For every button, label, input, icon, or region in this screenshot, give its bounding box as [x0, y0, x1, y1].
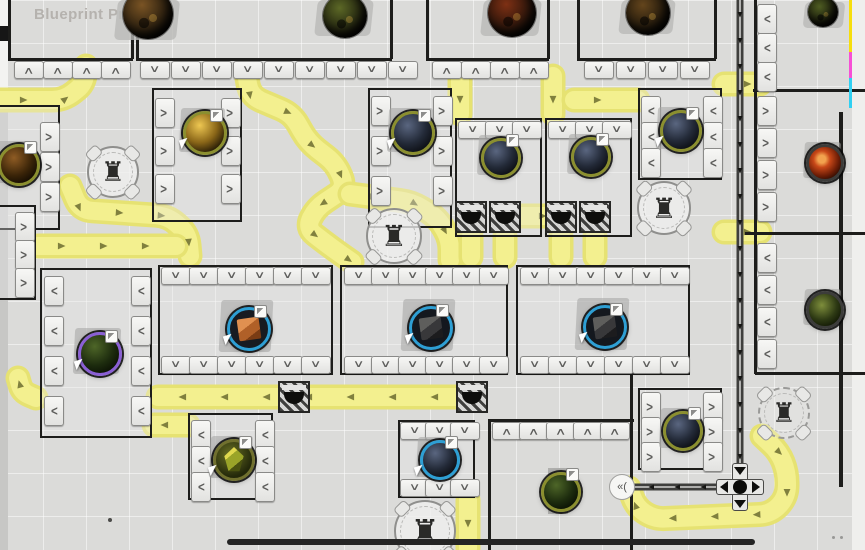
arrow-left-icon: [720, 481, 728, 493]
chevron-down-icon: ∨: [380, 360, 392, 370]
belt-port[interactable]: ∨: [632, 267, 662, 285]
chevron-right-icon: ∨: [226, 183, 236, 195]
chevron-up-icon: ∨: [528, 65, 540, 75]
chevron-right-icon: ∨: [45, 131, 55, 143]
belt-port[interactable]: ∨: [632, 356, 662, 374]
platform-border: [547, 0, 550, 59]
chevron-right-icon: ∨: [438, 185, 448, 197]
belt-port[interactable]: ∨: [101, 61, 131, 79]
platform-border: [390, 0, 393, 59]
belt-port[interactable]: ∨: [576, 267, 606, 285]
chevron-down-icon: ∨: [434, 271, 446, 281]
node-info-badge: [24, 141, 37, 154]
belt-port[interactable]: ∨: [479, 267, 509, 285]
chevron-right-icon: ∨: [708, 401, 718, 413]
belt-port[interactable]: ∨: [264, 61, 294, 79]
belt-port[interactable]: ∨: [388, 61, 418, 79]
belt-port[interactable]: ∨: [217, 356, 247, 374]
chevron-down-icon: ∨: [226, 360, 238, 370]
belt-port[interactable]: ∨: [273, 267, 303, 285]
node-info-badge: [254, 305, 267, 318]
belt-port[interactable]: ∨: [301, 267, 331, 285]
chevron-down-icon: ∨: [625, 65, 637, 75]
chevron-up-icon: ∨: [501, 426, 513, 436]
chevron-left-icon: ∨: [196, 481, 206, 493]
chevron-right-icon: ∨: [646, 451, 656, 463]
arrow-down-icon: [734, 467, 746, 475]
tunnel-lip: [549, 205, 573, 210]
chevron-down-icon: ∨: [529, 271, 541, 281]
platform-border: [488, 421, 491, 550]
tower-rook-icon: ♜: [760, 389, 808, 437]
chevron-down-icon: ∨: [170, 360, 182, 370]
chevron-right-icon: ∨: [646, 401, 656, 413]
station-tower[interactable]: ♜: [366, 208, 422, 264]
chevron-down-icon: ∨: [529, 360, 541, 370]
chevron-down-icon: ∨: [310, 360, 322, 370]
dock-button[interactable]: «(: [609, 474, 635, 500]
chevron-right-icon: ∨: [20, 277, 30, 289]
platform-border: [714, 0, 717, 59]
chevron-left-icon: ∨: [49, 325, 59, 337]
belt-port[interactable]: ∨: [255, 472, 275, 502]
platform-border: [8, 0, 11, 59]
chevron-left-icon: ∨: [260, 455, 270, 467]
chevron-down-icon: ∨: [488, 271, 500, 281]
belt-port[interactable]: ∨: [398, 356, 428, 374]
shape-crystal-icon: [222, 447, 245, 472]
speck-dot: [108, 518, 112, 522]
tunnel-lip: [282, 385, 306, 390]
belt-port[interactable]: ∨: [326, 61, 356, 79]
chevron-down-icon: ∨: [669, 360, 681, 370]
chevron-up-icon: ∨: [110, 65, 122, 75]
belt-port[interactable]: ∨: [131, 316, 151, 346]
belt-port[interactable]: ∨: [757, 33, 777, 63]
node-info-badge: [610, 303, 623, 316]
chevron-down-icon: ∨: [409, 426, 421, 436]
station-tower[interactable]: ♜: [87, 146, 139, 198]
chevron-down-icon: ∨: [521, 125, 533, 135]
chevron-up-icon: ∨: [528, 426, 540, 436]
belt-port[interactable]: ∨: [131, 276, 151, 306]
chevron-down-icon: ∨: [657, 65, 669, 75]
node-info-badge: [506, 134, 519, 147]
chevron-down-icon: ∨: [557, 125, 569, 135]
chevron-down-icon: ∨: [434, 483, 446, 493]
belt-port[interactable]: ∨: [131, 396, 151, 426]
belt-port[interactable]: ∨: [221, 174, 241, 204]
chevron-left-icon: ∨: [646, 131, 656, 143]
belt-port[interactable]: ∨: [757, 275, 777, 305]
belt-port[interactable]: ∨: [757, 192, 777, 222]
tower-rook-icon: ♜: [89, 148, 137, 196]
belt-tunnel[interactable]: [456, 381, 488, 413]
belt-port[interactable]: ∨: [519, 61, 549, 79]
belt-port[interactable]: ∨: [452, 356, 482, 374]
resource-node[interactable]: [806, 144, 844, 182]
belt-port[interactable]: ∨: [40, 182, 60, 212]
belt-port[interactable]: ∨: [450, 479, 480, 497]
chevron-down-icon: ∨: [407, 360, 419, 370]
chevron-down-icon: ∨: [353, 271, 365, 281]
belt-port[interactable]: ∨: [191, 472, 211, 502]
chevron-down-icon: ∨: [461, 360, 473, 370]
belt-port[interactable]: ∨: [703, 148, 723, 178]
chevron-down-icon: ∨: [380, 271, 392, 281]
chevron-right-icon: ∨: [438, 105, 448, 117]
rail-junction[interactable]: [716, 463, 764, 511]
shape-cube-icon: [419, 316, 444, 341]
edge-color-strip: [849, 78, 852, 108]
station-tower[interactable]: ♜: [637, 181, 691, 235]
chevron-left-icon: ∨: [762, 252, 772, 264]
chevron-down-icon: ∨: [282, 271, 294, 281]
belt-port[interactable]: ∨: [604, 267, 634, 285]
belt-port[interactable]: ∨: [680, 61, 710, 79]
chevron-down-icon: ∨: [198, 360, 210, 370]
resource-node[interactable]: [806, 291, 844, 329]
platform-border: [755, 372, 865, 375]
chevron-left-icon: ∨: [136, 405, 146, 417]
chevron-left-icon: ∨: [762, 316, 772, 328]
chevron-down-icon: ∨: [585, 360, 597, 370]
node-info-badge: [688, 407, 701, 420]
chevron-right-icon: ∨: [762, 201, 772, 213]
node-info-badge: [210, 109, 223, 122]
belt-port[interactable]: ∨: [604, 356, 634, 374]
speck-dot: [832, 536, 835, 539]
chevron-down-icon: ∨: [613, 360, 625, 370]
chevron-right-icon: ∨: [708, 426, 718, 438]
chevron-up-icon: ∨: [499, 65, 511, 75]
edge-color-strip: [849, 0, 852, 52]
chevron-right-icon: ∨: [20, 221, 30, 233]
belt-port[interactable]: ∨: [140, 61, 170, 79]
chevron-down-icon: ∨: [434, 360, 446, 370]
belt-port[interactable]: ∨: [44, 356, 64, 386]
chevron-down-icon: ∨: [669, 271, 681, 281]
belt-port[interactable]: ∨: [245, 267, 275, 285]
belt-port[interactable]: ∨: [189, 356, 219, 374]
junction-hub-icon: [733, 480, 747, 494]
edge-color-strip: [849, 52, 852, 78]
belt-port[interactable]: ∨: [757, 339, 777, 369]
node-info-badge: [105, 330, 118, 343]
chevron-left-icon: ∨: [49, 365, 59, 377]
belt-port[interactable]: ∨: [433, 96, 453, 126]
belt-port[interactable]: ∨: [548, 267, 578, 285]
belt-port[interactable]: ∨: [295, 61, 325, 79]
chevron-up-icon: ∨: [81, 65, 93, 75]
belt-port[interactable]: ∨: [757, 160, 777, 190]
belt-port[interactable]: ∨: [202, 61, 232, 79]
chevron-left-icon: ∨: [49, 405, 59, 417]
bottom-scrollbar[interactable]: [227, 539, 755, 545]
belt-port[interactable]: ∨: [161, 267, 191, 285]
belt-port[interactable]: ∨: [398, 267, 428, 285]
chevron-up-icon: ∨: [555, 426, 567, 436]
belt-port[interactable]: ∨: [43, 61, 73, 79]
chevron-left-icon: ∨: [708, 157, 718, 169]
belt-port[interactable]: ∨: [452, 267, 482, 285]
chevron-right-icon: ∨: [226, 107, 236, 119]
belt-port[interactable]: ∨: [217, 267, 247, 285]
chevron-left-icon: ∨: [136, 325, 146, 337]
belt-port[interactable]: ∨: [371, 176, 391, 206]
chevron-down-icon: ∨: [273, 65, 285, 75]
station-tower[interactable]: ♜: [758, 387, 810, 439]
chevron-right-icon: ∨: [438, 145, 448, 157]
belt-port[interactable]: ∨: [344, 356, 374, 374]
belt-port[interactable]: ∨: [14, 61, 44, 79]
belt-port[interactable]: ∨: [461, 61, 491, 79]
chevron-down-icon: ∨: [459, 483, 471, 493]
shape-cube-icon: [237, 317, 262, 342]
platform-border: [630, 373, 633, 550]
tower-rook-icon: ♜: [639, 183, 689, 233]
belt-tunnel[interactable]: [278, 381, 310, 413]
belt-port[interactable]: ∨: [490, 61, 520, 79]
chevron-down-icon: ∨: [282, 360, 294, 370]
chevron-left-icon: ∨: [762, 348, 772, 360]
belt-port[interactable]: ∨: [425, 356, 455, 374]
belt-port[interactable]: ∨: [44, 396, 64, 426]
chevron-up-icon: ∨: [441, 65, 453, 75]
belt-port[interactable]: ∨: [576, 356, 606, 374]
chevron-down-icon: ∨: [459, 426, 471, 436]
belt-port[interactable]: ∨: [301, 356, 331, 374]
belt-port[interactable]: ∨: [660, 267, 690, 285]
belt-port[interactable]: ∨: [433, 136, 453, 166]
chevron-up-icon: ∨: [609, 426, 621, 436]
tunnel-lip: [459, 205, 483, 210]
node-info-badge: [686, 107, 699, 120]
belt-port[interactable]: ∨: [573, 422, 603, 440]
chevron-down-icon: ∨: [353, 360, 365, 370]
belt-port[interactable]: ∨: [155, 136, 175, 166]
belt-port[interactable]: ∨: [15, 268, 35, 298]
chevron-down-icon: ∨: [226, 271, 238, 281]
node-info-badge: [566, 468, 579, 481]
belt-tunnel[interactable]: [579, 201, 611, 233]
belt-port[interactable]: ∨: [648, 61, 678, 79]
chevron-up-icon: ∨: [582, 426, 594, 436]
tunnel-mouth-icon: [461, 212, 481, 224]
chevron-left-icon: ∨: [762, 284, 772, 296]
tunnel-mouth-icon: [551, 212, 571, 224]
conveyor-belt[interactable]: [18, 378, 36, 398]
chevron-down-icon: ∨: [611, 125, 623, 135]
chevron-down-icon: ∨: [641, 271, 653, 281]
belt-tunnel[interactable]: [489, 201, 521, 233]
belt-port[interactable]: ∨: [371, 356, 401, 374]
chevron-down-icon: ∨: [310, 271, 322, 281]
chevron-left-icon: ∨: [196, 455, 206, 467]
shape-cube-icon: [593, 315, 618, 340]
tunnel-lip: [460, 385, 484, 390]
chevron-right-icon: ∨: [160, 183, 170, 195]
chevron-right-icon: ∨: [762, 105, 772, 117]
chevron-left-icon: ∨: [646, 105, 656, 117]
belt-port[interactable]: ∨: [161, 356, 191, 374]
belt-port[interactable]: ∨: [757, 62, 777, 92]
belt-port[interactable]: ∨: [44, 316, 64, 346]
chevron-down-icon: ∨: [397, 65, 409, 75]
chevron-down-icon: ∨: [494, 125, 506, 135]
node-info-badge: [445, 436, 458, 449]
chevron-right-icon: ∨: [376, 145, 386, 157]
belt-port[interactable]: ∨: [40, 122, 60, 152]
chevron-down-icon: ∨: [366, 65, 378, 75]
platform-border: [577, 0, 580, 59]
belt-port[interactable]: ∨: [72, 61, 102, 79]
platform-border: [426, 0, 429, 59]
chevron-right-icon: ∨: [45, 161, 55, 173]
node-info-badge: [239, 436, 252, 449]
speck-dot: [840, 536, 843, 539]
belt-tunnel[interactable]: [545, 201, 577, 233]
belt-port[interactable]: ∨: [189, 267, 219, 285]
belt-port[interactable]: ∨: [357, 61, 387, 79]
chevron-left-icon: ∨: [136, 285, 146, 297]
chevron-left-icon: ∨: [260, 429, 270, 441]
chevron-up-icon: ∨: [23, 65, 35, 75]
arrow-down-icon: [734, 500, 746, 508]
node-info-badge: [418, 109, 431, 122]
chevron-right-icon: ∨: [160, 145, 170, 157]
chevron-down-icon: ∨: [689, 65, 701, 75]
belt-port[interactable]: ∨: [40, 152, 60, 182]
tunnel-mouth-icon: [495, 212, 515, 224]
chevron-right-icon: ∨: [762, 169, 772, 181]
belt-port[interactable]: ∨: [432, 61, 462, 79]
belt-port[interactable]: ∨: [273, 356, 303, 374]
chevron-left-icon: ∨: [196, 429, 206, 441]
chevron-down-icon: ∨: [488, 360, 500, 370]
chevron-down-icon: ∨: [407, 271, 419, 281]
belt-port[interactable]: ∨: [757, 243, 777, 273]
belt-port[interactable]: ∨: [520, 356, 550, 374]
belt-port[interactable]: ∨: [155, 98, 175, 128]
chevron-down-icon: ∨: [335, 65, 347, 75]
tunnel-mouth-icon: [462, 392, 482, 404]
chevron-down-icon: ∨: [641, 360, 653, 370]
tunnel-mouth-icon: [284, 392, 304, 404]
chevron-down-icon: ∨: [461, 271, 473, 281]
chevron-left-icon: ∨: [260, 481, 270, 493]
belt-port[interactable]: ∨: [546, 422, 576, 440]
chevron-down-icon: ∨: [170, 271, 182, 281]
belt-port[interactable]: ∨: [433, 176, 453, 206]
chevron-down-icon: ∨: [467, 125, 479, 135]
belt-port[interactable]: ∨: [44, 276, 64, 306]
belt-port[interactable]: ∨: [425, 267, 455, 285]
chevron-left-icon: ∨: [49, 285, 59, 297]
chevron-left-icon: ∨: [646, 157, 656, 169]
node-info-badge: [596, 133, 609, 146]
chevron-down-icon: ∨: [557, 360, 569, 370]
chevron-down-icon: ∨: [180, 65, 192, 75]
chevron-down-icon: ∨: [242, 65, 254, 75]
belt-port[interactable]: ∨: [520, 267, 550, 285]
belt-port[interactable]: ∨: [757, 96, 777, 126]
tower-rook-icon: ♜: [368, 210, 420, 262]
chevron-right-icon: ∨: [376, 105, 386, 117]
chevron-left-icon: ∨: [708, 131, 718, 143]
chevron-right-icon: ∨: [708, 451, 718, 463]
belt-port[interactable]: ∨: [15, 240, 35, 270]
chevron-up-icon: ∨: [470, 65, 482, 75]
belt-port[interactable]: ∨: [757, 4, 777, 34]
belt-port[interactable]: ∨: [344, 267, 374, 285]
chevron-down-icon: ∨: [149, 65, 161, 75]
belt-port[interactable]: ∨: [131, 356, 151, 386]
chevron-down-icon: ∨: [613, 271, 625, 281]
chevron-right-icon: ∨: [160, 107, 170, 119]
chevron-left-icon: ∨: [762, 13, 772, 25]
belt-port[interactable]: ∨: [245, 356, 275, 374]
belt-port[interactable]: ∨: [641, 442, 661, 472]
belt-port[interactable]: ∨: [15, 212, 35, 242]
chevron-down-icon: ∨: [585, 271, 597, 281]
belt-port[interactable]: ∨: [616, 61, 646, 79]
chevron-right-icon: ∨: [20, 249, 30, 261]
belt-port[interactable]: ∨: [584, 61, 614, 79]
chevron-down-icon: ∨: [254, 271, 266, 281]
blueprint-canvas[interactable]: Blueprint Preview ∨∨∨∨∨∨∨∨∨∨∨∨∨∨∨∨∨∨∨∨∨∨…: [0, 0, 865, 550]
chevron-left-icon: ∨: [136, 365, 146, 377]
chevron-right-icon: ∨: [45, 191, 55, 203]
chevron-down-icon: ∨: [211, 65, 223, 75]
belt-port[interactable]: ∨: [641, 148, 661, 178]
chevron-down-icon: ∨: [434, 426, 446, 436]
belt-tunnel[interactable]: [455, 201, 487, 233]
belt-port[interactable]: ∨: [371, 267, 401, 285]
chevron-right-icon: ∨: [376, 185, 386, 197]
arrow-right-icon: [752, 481, 760, 493]
belt-port[interactable]: ∨: [479, 356, 509, 374]
chevron-down-icon: ∨: [198, 271, 210, 281]
belt-port[interactable]: ∨: [171, 61, 201, 79]
chevron-down-icon: ∨: [254, 360, 266, 370]
belt-port[interactable]: ∨: [155, 174, 175, 204]
belt-port[interactable]: ∨: [660, 356, 690, 374]
belt-port[interactable]: ∨: [600, 422, 630, 440]
chevron-down-icon: ∨: [304, 65, 316, 75]
belt-port[interactable]: ∨: [233, 61, 263, 79]
chevron-right-icon: ∨: [226, 145, 236, 157]
tunnel-lip: [493, 205, 517, 210]
tunnel-mouth-icon: [585, 212, 605, 224]
belt-port[interactable]: ∨: [492, 422, 522, 440]
node-info-badge: [436, 304, 449, 317]
belt-port[interactable]: ∨: [757, 307, 777, 337]
chevron-down-icon: ∨: [557, 271, 569, 281]
belt-port[interactable]: ∨: [548, 356, 578, 374]
chevron-up-icon: ∨: [52, 65, 64, 75]
tunnel-lip: [583, 205, 607, 210]
chevron-left-icon: ∨: [762, 71, 772, 83]
chevron-left-icon: ∨: [708, 105, 718, 117]
platform-border: [745, 232, 865, 235]
chevron-right-icon: ∨: [762, 137, 772, 149]
chevron-left-icon: ∨: [762, 42, 772, 54]
belt-port[interactable]: ∨: [757, 128, 777, 158]
chevron-down-icon: ∨: [593, 65, 605, 75]
chevron-down-icon: ∨: [409, 483, 421, 493]
belt-port[interactable]: ∨: [519, 422, 549, 440]
